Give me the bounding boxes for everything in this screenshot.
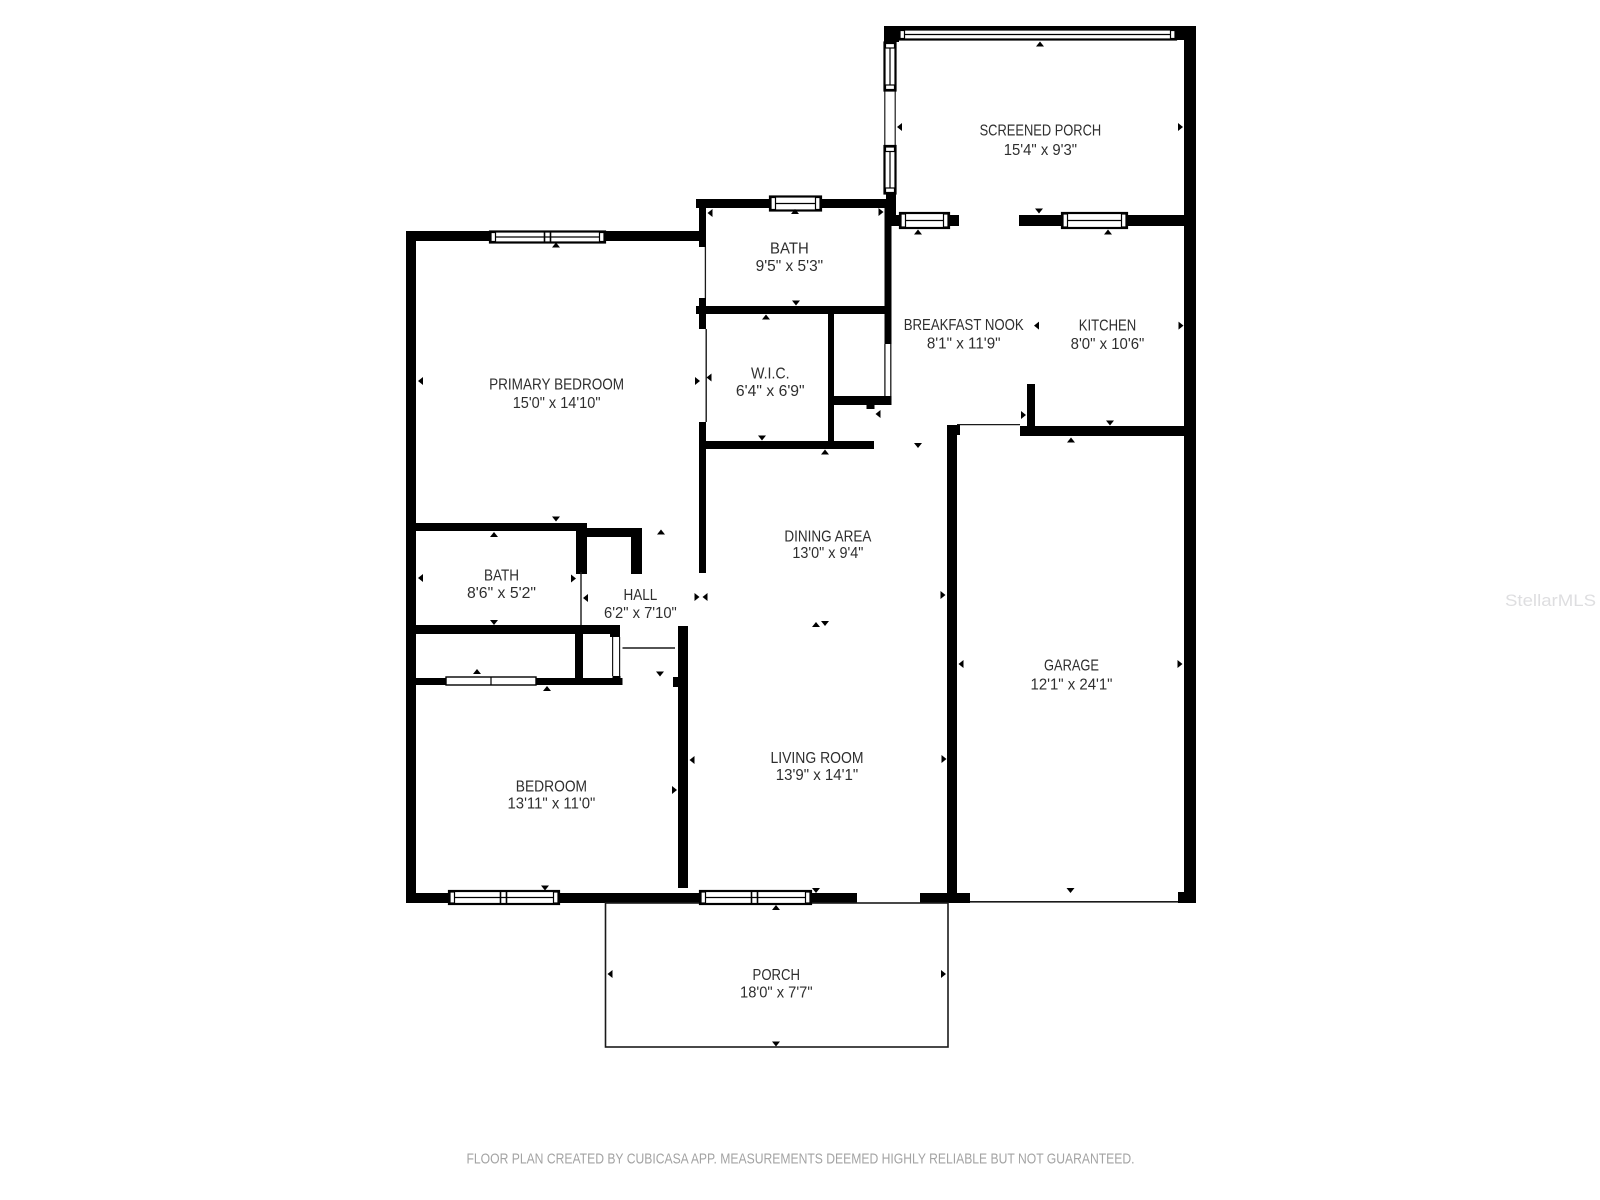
svg-text:KITCHEN: KITCHEN (1079, 318, 1137, 335)
svg-text:PORCH: PORCH (753, 967, 801, 984)
svg-text:13'9" x 14'1": 13'9" x 14'1" (776, 767, 859, 784)
svg-text:DINING AREA: DINING AREA (784, 528, 872, 545)
svg-text:8'6" x 5'2": 8'6" x 5'2" (467, 585, 536, 602)
svg-text:BATH: BATH (484, 568, 519, 585)
svg-text:HALL: HALL (624, 587, 658, 604)
svg-text:6'4" x 6'9": 6'4" x 6'9" (736, 383, 805, 400)
svg-text:8'1" x 11'9": 8'1" x 11'9" (927, 335, 1001, 352)
svg-text:9'5" x 5'3": 9'5" x 5'3" (756, 258, 824, 275)
svg-text:BEDROOM: BEDROOM (516, 779, 587, 796)
svg-text:6'2" x 7'10": 6'2" x 7'10" (604, 605, 677, 622)
svg-text:15'4" x 9'3": 15'4" x 9'3" (1004, 142, 1077, 159)
svg-text:BREAKFAST NOOK: BREAKFAST NOOK (904, 317, 1025, 334)
svg-text:18'0" x 7'7": 18'0" x 7'7" (740, 985, 813, 1002)
svg-text:LIVING ROOM: LIVING ROOM (771, 750, 864, 767)
svg-text:PRIMARY BEDROOM: PRIMARY BEDROOM (489, 377, 624, 394)
svg-text:StellarMLS: StellarMLS (1505, 591, 1596, 610)
svg-text:W.I.C.: W.I.C. (751, 366, 790, 383)
svg-text:15'0" x 14'10": 15'0" x 14'10" (513, 395, 601, 412)
svg-text:SCREENED PORCH: SCREENED PORCH (980, 123, 1102, 140)
svg-text:13'0" x 9'4": 13'0" x 9'4" (792, 545, 863, 562)
svg-text:8'0" x 10'6": 8'0" x 10'6" (1071, 336, 1145, 353)
svg-text:BATH: BATH (770, 241, 809, 258)
svg-text:GARAGE: GARAGE (1044, 658, 1099, 675)
svg-text:13'11" x 11'0": 13'11" x 11'0" (508, 796, 596, 813)
svg-text:FLOOR PLAN CREATED BY CUBICASA: FLOOR PLAN CREATED BY CUBICASA APP. MEAS… (467, 1152, 1135, 1168)
svg-text:12'1" x 24'1": 12'1" x 24'1" (1031, 676, 1113, 693)
